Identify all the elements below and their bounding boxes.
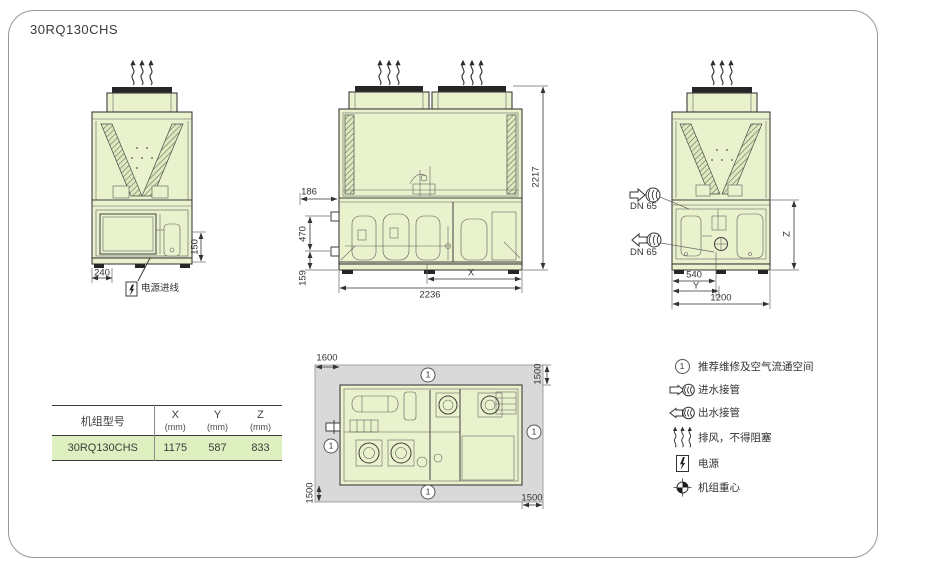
dim-1500-top-right: 1500 [533,363,543,384]
exhaust-arrows-icon [710,60,733,85]
water-inlet-icon [666,382,698,398]
power-icon [666,455,698,472]
exhaust-arrows-icon [460,60,483,85]
table-row: 30RQ130CHS 1175 587 833 [52,436,282,461]
technical-drawing-page: { "title": "30RQ130CHS", "front_view": {… [0,0,930,573]
legend-label-water-outlet: 出水接管 [698,405,740,420]
dim-z: Z [782,231,792,237]
circled-1-glyph: 1 [675,359,690,374]
gravity-center-icon [666,478,698,497]
dim-1600: 1600 [316,353,337,363]
dn65-outlet-label: DN 65 [630,248,657,258]
dim-2217: 2217 [531,166,541,187]
cell-z: 833 [239,436,282,461]
legend-label-exhaust: 排风，不得阻塞 [698,430,772,445]
power-inlet-label: 电源进线 [141,284,179,294]
dim-470: 470 [298,226,308,242]
dim-1200: 1200 [710,293,731,303]
col-header-z-unit: (mm) [239,422,282,432]
legend: 1 推荐维修及空气流通空间 进水接管 出水接管 排风，不得阻塞 [666,355,884,499]
legend-item-power: 电源 [666,450,884,476]
power-inlet-icon [126,282,137,296]
legend-label-gravity-center: 机组重心 [698,480,740,495]
dim-540: 540 [686,270,702,280]
legend-item-exhaust: 排风，不得阻塞 [666,424,884,450]
legend-item-gravity-center: 机组重心 [666,476,884,499]
col-header-model: 机组型号 [52,406,154,436]
col-header-z-letter: Z [257,409,264,421]
dim-240: 240 [94,268,110,278]
back-view [630,60,799,309]
dim-y: Y [693,281,699,291]
legend-label-clearance: 推荐维修及空气流通空间 [698,359,814,374]
side-view [300,60,548,293]
spec-table: 机组型号 X(mm) Y(mm) Z(mm) 30RQ130CHS 1175 5… [52,405,282,461]
dim-1500-bottom-left: 1500 [305,482,315,503]
exhaust-arrows-icon [130,60,153,85]
col-header-x: X(mm) [154,406,196,436]
legend-item-clearance: 1 推荐维修及空气流通空间 [666,355,884,378]
clearance-marker-left: 1 [324,439,339,454]
front-view [92,60,206,296]
cell-y: 587 [196,436,239,461]
col-header-y-letter: Y [214,409,221,421]
legend-label-water-inlet: 进水接管 [698,382,740,397]
water-outlet-icon [666,405,698,421]
col-header-z: Z(mm) [239,406,282,436]
col-header-y-unit: (mm) [196,422,239,432]
legend-label-power: 电源 [698,456,719,471]
exhaust-arrows-icon [377,60,400,85]
legend-item-water-outlet: 出水接管 [666,401,884,424]
dim-186: 186 [301,187,317,197]
clearance-marker-bottom: 1 [421,485,436,500]
clearance-marker-right: 1 [527,425,542,440]
exhaust-icon [666,426,698,448]
col-header-x-letter: X [172,409,179,421]
dim-2236: 2236 [419,290,440,300]
circled-1-icon: 1 [666,359,698,374]
legend-item-water-inlet: 进水接管 [666,378,884,401]
cell-model: 30RQ130CHS [52,436,154,461]
dim-1500-bottom-right: 1500 [521,493,542,503]
col-header-y: Y(mm) [196,406,239,436]
dim-150: 150 [190,239,200,255]
dim-x: X [468,268,474,278]
dn65-inlet-label: DN 65 [630,202,657,212]
clearance-marker-top: 1 [421,368,436,383]
cell-x: 1175 [154,436,196,461]
dim-159: 159 [298,270,308,286]
col-header-x-unit: (mm) [155,422,197,432]
